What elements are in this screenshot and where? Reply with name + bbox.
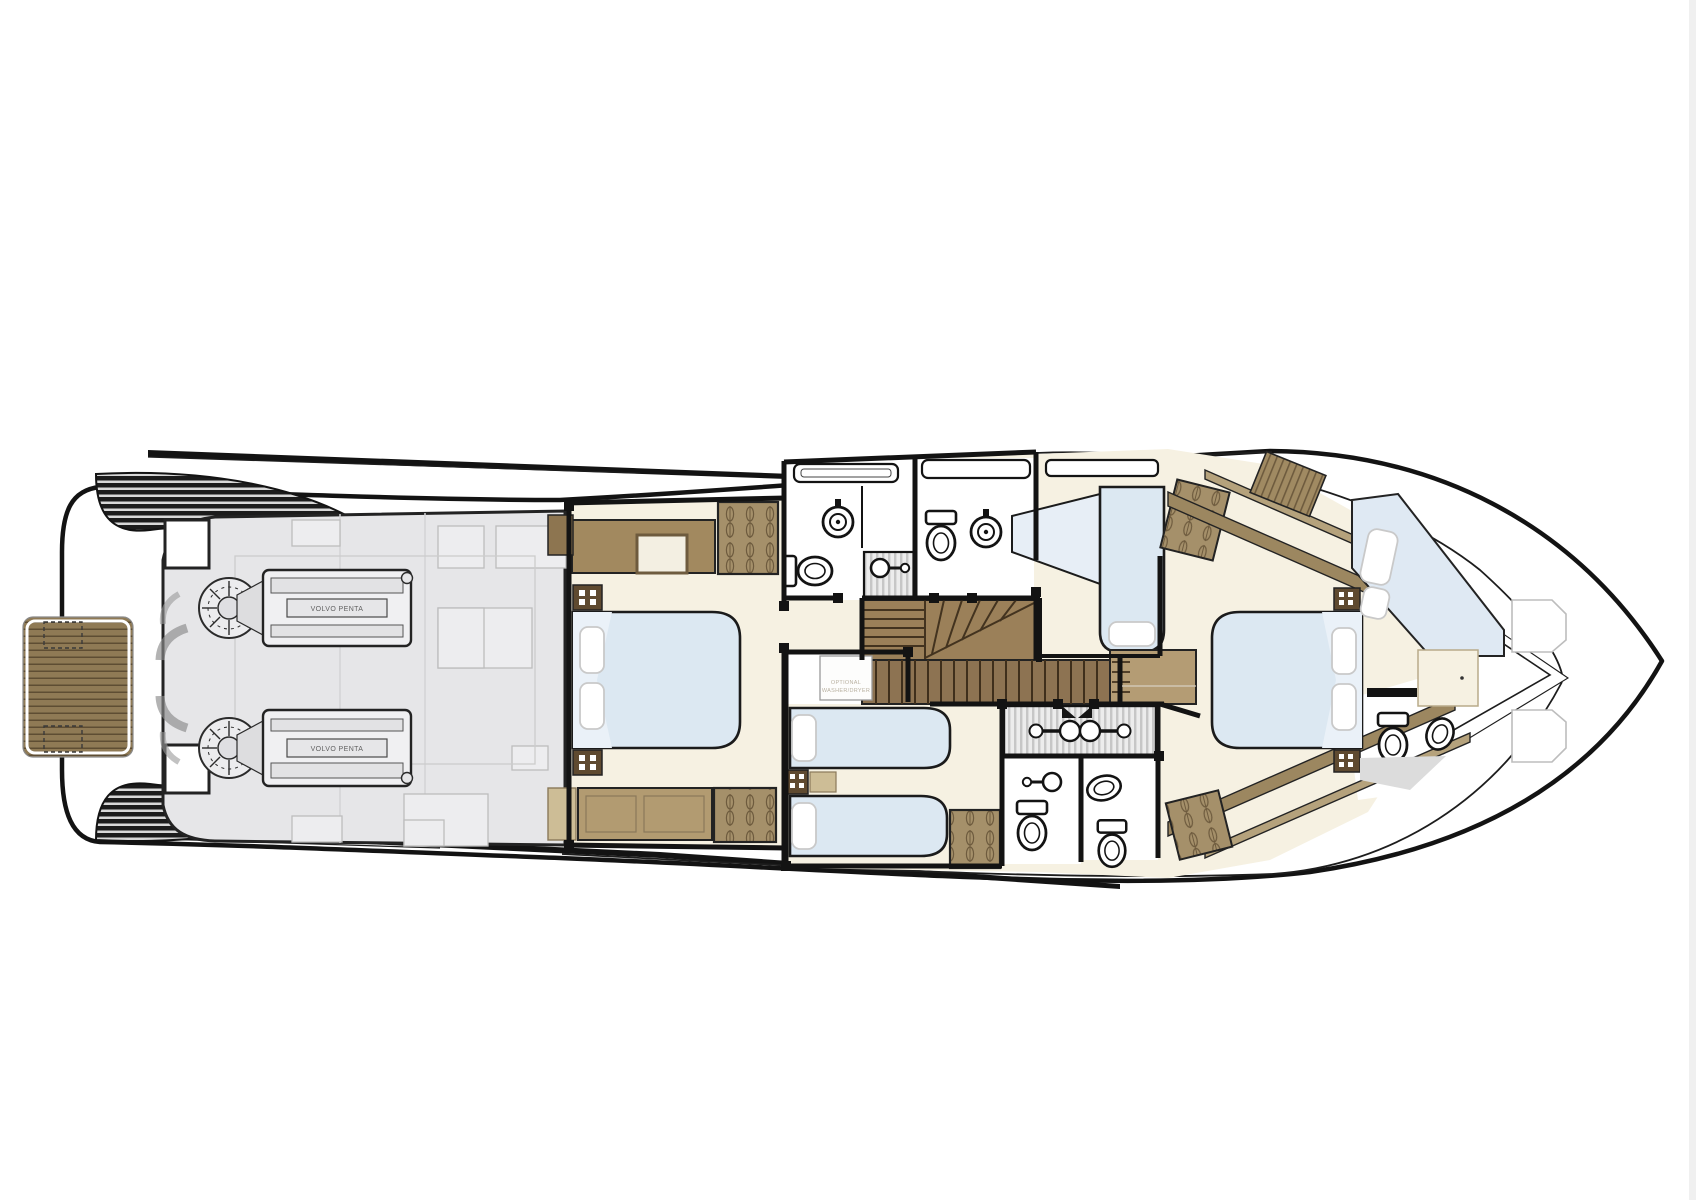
stair-lower bbox=[862, 660, 1110, 704]
twin-nightstand bbox=[786, 770, 836, 794]
page-edge bbox=[1689, 0, 1696, 1200]
pillow bbox=[1332, 684, 1356, 730]
bow-hatch-top bbox=[1512, 600, 1566, 652]
toilet-icon bbox=[783, 556, 832, 586]
engine-room-notch-top bbox=[165, 520, 209, 568]
sheer-wedge-top bbox=[148, 450, 874, 482]
engine-starboard-label: VOLVO PENTA bbox=[311, 746, 364, 753]
master-wardrobe-bottom bbox=[714, 788, 776, 842]
shared-shower-room bbox=[1004, 706, 1156, 756]
pillow bbox=[580, 627, 604, 673]
swim-platform bbox=[23, 617, 133, 757]
toilet-icon bbox=[1017, 801, 1047, 850]
pillow bbox=[792, 803, 816, 849]
engine-port-label: VOLVO PENTA bbox=[311, 606, 364, 613]
toilet-icon bbox=[926, 511, 956, 560]
pillow bbox=[792, 715, 816, 761]
floorplan-page: VOLVO PENTA VOLVO PENTA bbox=[0, 0, 1696, 1200]
vip-desk bbox=[1418, 650, 1478, 706]
vanity-shelf bbox=[794, 464, 898, 482]
desk-dot bbox=[1460, 676, 1464, 680]
seat-pillow bbox=[1359, 586, 1391, 621]
headboard-shelf bbox=[1046, 460, 1158, 476]
pillow bbox=[1109, 622, 1155, 646]
vanity-shelf bbox=[922, 460, 1030, 478]
utility-room: OPTIONAL WASHER/DRYER bbox=[820, 656, 872, 700]
stair-landing bbox=[1110, 650, 1196, 704]
washer-note-line2: WASHER/DRYER bbox=[822, 688, 870, 694]
vip-door bbox=[1367, 688, 1417, 697]
shower-pan bbox=[864, 552, 914, 598]
bow-hatch-bottom bbox=[1512, 710, 1566, 762]
master-side-locker-2 bbox=[548, 788, 576, 840]
toilet-icon bbox=[1098, 820, 1127, 867]
master-nightstand-bottom bbox=[573, 750, 602, 775]
toilet-icon bbox=[1378, 713, 1408, 762]
washer-note-line1: OPTIONAL bbox=[831, 680, 861, 686]
pillow bbox=[1332, 628, 1356, 674]
master-tv-niche bbox=[637, 535, 687, 573]
pillow bbox=[580, 683, 604, 729]
engine-room: VOLVO PENTA VOLVO PENTA bbox=[160, 511, 566, 846]
master-nightstand-top bbox=[573, 585, 602, 610]
twin-wardrobe bbox=[950, 810, 1000, 868]
lower-deck-plan: VOLVO PENTA VOLVO PENTA bbox=[0, 0, 1696, 1200]
vip-nightstand-bottom bbox=[1334, 750, 1360, 772]
vip-nightstand-top bbox=[1334, 588, 1360, 610]
master-wardrobe-top bbox=[718, 502, 778, 574]
